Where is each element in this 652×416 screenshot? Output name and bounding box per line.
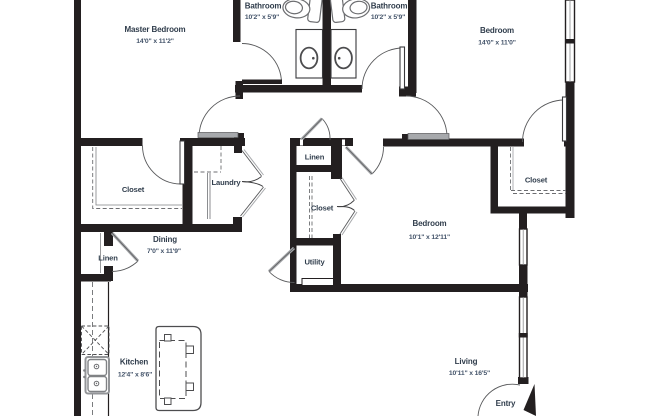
svg-text:Linen: Linen [98, 254, 118, 263]
svg-text:10'11" x 16'5": 10'11" x 16'5" [449, 370, 490, 377]
svg-text:Laundry: Laundry [212, 178, 242, 187]
svg-text:Dining: Dining [153, 235, 177, 244]
svg-text:Bedroom: Bedroom [480, 26, 514, 35]
svg-text:Living: Living [455, 357, 478, 366]
svg-text:Master Bedroom: Master Bedroom [124, 25, 185, 34]
svg-text:10'2" x 5'9": 10'2" x 5'9" [245, 14, 279, 21]
svg-text:Bathroom: Bathroom [371, 2, 408, 11]
svg-text:7'0" x 11'9": 7'0" x 11'9" [147, 248, 181, 255]
svg-text:Closet: Closet [122, 185, 145, 194]
svg-text:Closet: Closet [311, 204, 334, 213]
svg-text:Bedroom: Bedroom [412, 219, 446, 228]
svg-text:Linen: Linen [305, 153, 325, 162]
svg-text:Closet: Closet [525, 176, 548, 185]
svg-text:14'0" x 11'2": 14'0" x 11'2" [136, 38, 174, 45]
svg-text:Bathroom: Bathroom [245, 2, 282, 11]
svg-text:Utility: Utility [304, 258, 325, 267]
svg-text:10'1" x 12'11": 10'1" x 12'11" [409, 234, 450, 241]
svg-text:Kitchen: Kitchen [120, 358, 149, 367]
svg-text:Entry: Entry [496, 399, 516, 408]
svg-text:10'2" x 5'9": 10'2" x 5'9" [371, 14, 405, 21]
svg-text:12'4" x 8'6": 12'4" x 8'6" [118, 372, 152, 379]
svg-text:14'0" x 11'0": 14'0" x 11'0" [478, 40, 516, 47]
